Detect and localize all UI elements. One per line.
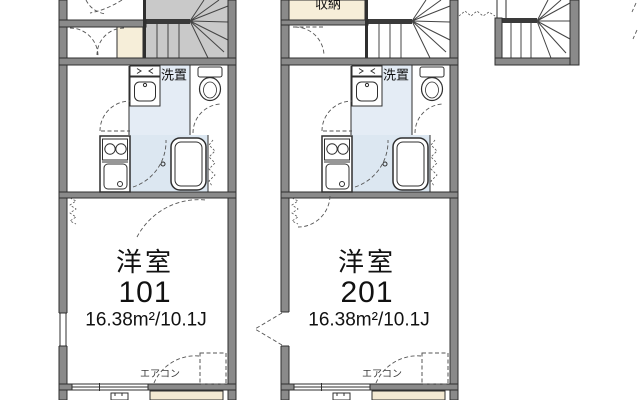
balcony-fixture [333,393,350,400]
left-door-swing [255,313,282,345]
aircon-label-101: エアコン [140,370,180,380]
stair-landing-edge [368,19,412,24]
washer-space-label-201: 洗置 [383,69,409,82]
aircon-dashed-box [422,353,448,384]
balcony-fixture [111,393,128,400]
unit-201-plan [255,0,458,400]
room-area-101: 16.38m²/10.1J [85,311,206,330]
washing-machine-space [130,66,160,76]
closet [117,27,143,58]
staircase-area [368,0,450,58]
bathtub [171,138,206,190]
toilet-bowl [422,78,443,101]
stair-landing-edge [146,19,190,24]
floorplan-svg [0,0,640,400]
external-staircase [459,0,579,65]
washbasin-bowl [357,82,378,101]
room-number-201: 201 [340,278,393,308]
washbasin-bowl [135,82,156,101]
washing-machine-space [352,66,382,76]
toilet-tank [198,67,222,77]
stair-side-wall [143,0,146,58]
room-name-201: 洋室 [338,249,396,275]
left-wall-upper [281,0,289,312]
balcony [372,391,445,400]
unit-101-plan [59,0,237,400]
wall-below-stairs [281,58,458,65]
room-name-101: 洋室 [116,249,174,275]
bathtub [393,138,428,190]
upper-partition-wall [59,20,146,27]
kitchen-sink [104,164,127,189]
wall-below-stairs [59,58,236,65]
stair-right-wall [570,0,579,65]
edge-dash-marks [632,3,637,39]
wall-above-main-room [59,192,236,198]
stove-burner [105,144,115,154]
staircase-area [146,0,228,58]
stair-bottom-wall [495,58,579,65]
sink-drain [118,182,123,187]
room-number-101: 101 [118,278,171,308]
washer-space-label-101: 洗置 [161,69,187,82]
stair-left-wall [495,18,502,58]
kitchen-sink [326,164,349,189]
closet-label-201: 収納 [315,0,341,11]
stair-side-wall [365,0,368,58]
upper-partition-wall [281,20,368,25]
stove-burner [338,144,348,154]
room-area-201: 16.38m²/10.1J [308,311,429,330]
floor-plan-canvas: 洋室 101 16.38m²/10.1J 洗置 エアコン 洋室 201 16.3… [0,0,640,400]
balcony [150,391,223,400]
wall-above-main-room [281,192,458,198]
stove-burner [116,144,126,154]
stair-landing-edge [502,18,537,23]
left-door-opening [281,312,290,346]
sink-drain [340,182,345,187]
toilet-tank [420,67,444,77]
aircon-label-201: エアコン [362,370,402,380]
connection-hatch [459,11,495,16]
left-wall-lower [281,346,289,400]
aircon-dashed-box [200,353,226,384]
toilet-bowl [200,78,221,101]
stove-burner [327,144,337,154]
